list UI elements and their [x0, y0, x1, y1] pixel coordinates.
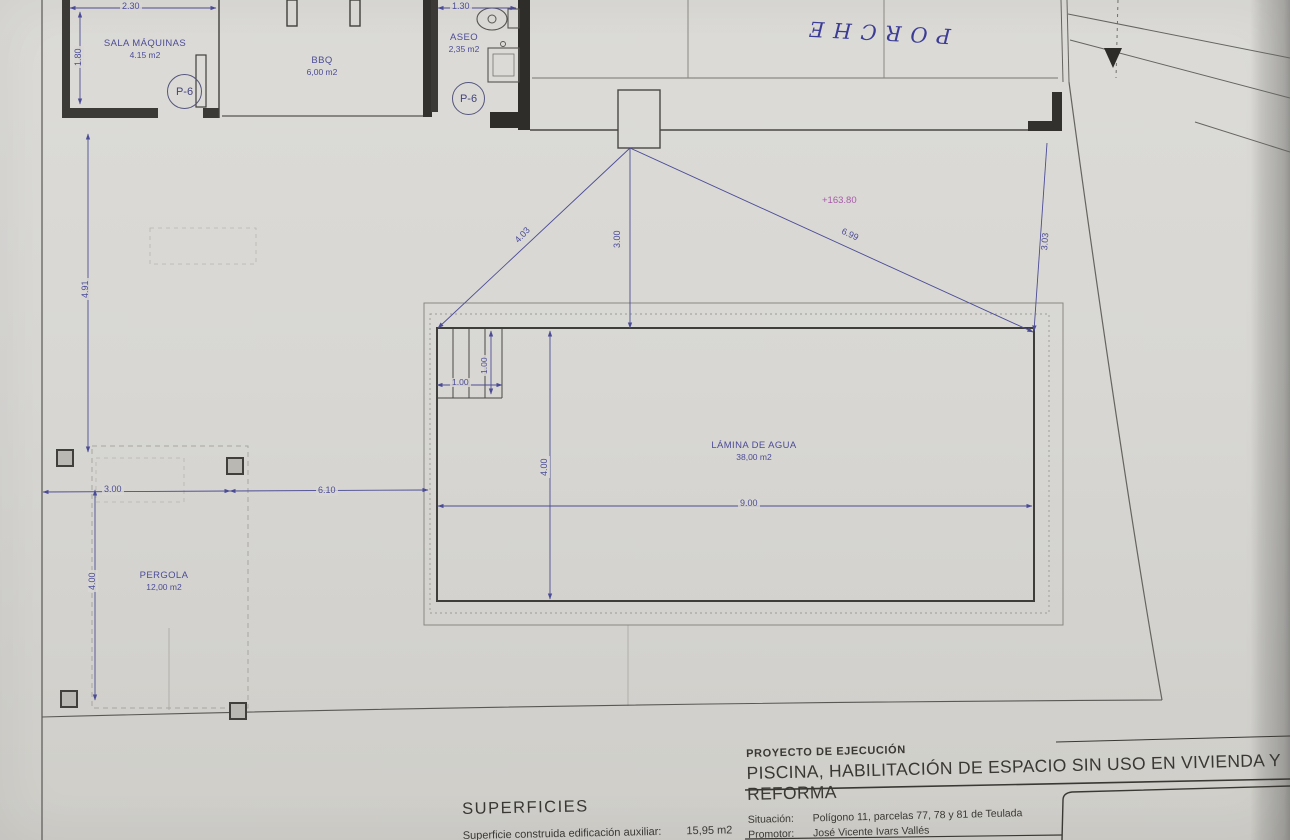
- bbq-pillar: [287, 0, 297, 26]
- dim-steps-height: 1.00: [480, 355, 489, 376]
- dim-ground-left: 3.00: [102, 485, 124, 495]
- pool-steps: [438, 329, 502, 398]
- porch-lines: [530, 0, 1062, 148]
- door-tag-p6-aseo: P-6: [452, 82, 485, 115]
- dim-sala-width: 2.30: [120, 2, 142, 12]
- dim-aseo-width: 1.30: [450, 2, 472, 12]
- dim-left-lower: 4.00: [88, 570, 98, 592]
- dim-center-vert: 3.00: [613, 228, 623, 250]
- project-title: PISCINA, HABILITACIÓN DE ESPACIO SIN USO…: [746, 750, 1287, 805]
- dim-left-upper: 4.91: [81, 278, 91, 300]
- slope-arrow-icon: [1104, 48, 1122, 68]
- room-label-pergola: PERGOLA 12,00 m2: [118, 570, 210, 593]
- superficies-block: SUPERFICIES Superficie construida edific…: [462, 793, 793, 840]
- pergola-post: [60, 690, 78, 708]
- aseo-walls: [431, 0, 530, 130]
- dim-ground-right: 6.10: [316, 486, 338, 496]
- dim-pool-width: 4.00: [540, 456, 550, 478]
- room-label-bbq: BBQ 6,00 m2: [272, 55, 372, 78]
- plan-linework: [0, 0, 1290, 840]
- room-label-aseo: ASEO 2,35 m2: [432, 32, 496, 55]
- room-label-sala-maquinas: SALA MÁQUINAS 4.15 m2: [95, 38, 195, 61]
- dim-steps-width: 1.00: [450, 378, 471, 387]
- dimension-lines: [43, 8, 1047, 700]
- site-boundary-lines: [1061, 0, 1290, 700]
- toilet-fixture: [477, 8, 507, 30]
- dim-pool-length: 9.00: [738, 499, 760, 509]
- bbq-pillar: [350, 0, 360, 26]
- dim-right-vert: 3.03: [1040, 231, 1051, 253]
- front-pillar: [618, 90, 660, 148]
- title-block: PROYECTO DE EJECUCIÓN PISCINA, HABILITAC…: [746, 735, 1288, 840]
- scanned-floor-plan-page: SALA MÁQUINAS 4.15 m2 BBQ 6,00 m2 ASEO 2…: [0, 0, 1290, 840]
- level-mark: +163.80: [820, 196, 859, 206]
- plot-boundary-bottom: [42, 700, 1162, 717]
- pergola-post: [229, 702, 247, 720]
- pergola-post: [226, 457, 244, 475]
- pool-outline: [424, 303, 1063, 625]
- room-label-lamina-de-agua: LÁMINA DE AGUA 38,00 m2: [690, 440, 818, 463]
- door-tag-p6-sala: P-6: [167, 74, 202, 109]
- pergola-post: [56, 449, 74, 467]
- dim-sala-height: 1.80: [74, 46, 84, 68]
